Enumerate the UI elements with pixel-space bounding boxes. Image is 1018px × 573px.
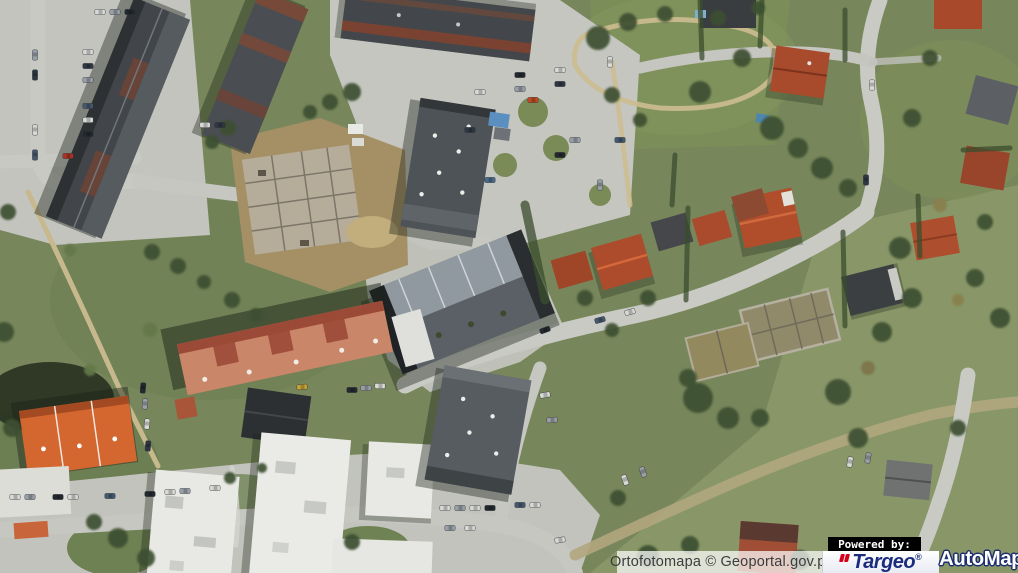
automapa-logo[interactable]: AutoMapa ®: [939, 548, 1018, 570]
targeo-logo[interactable]: Targeo ®: [822, 551, 939, 573]
powered-by-label: Powered by:: [828, 537, 921, 551]
targeo-quote-icon: [840, 554, 850, 562]
powered-by-text: Powered by:: [838, 538, 911, 551]
aerial-photo: [0, 0, 1018, 573]
building: [174, 396, 197, 419]
automapa-wordmark: AutoMapa: [939, 548, 1018, 570]
building: [11, 387, 138, 479]
building: [0, 466, 71, 518]
building: [13, 521, 48, 539]
map-viewport[interactable]: Ortofotomapa © Geoportal.gov.pl Powered …: [0, 0, 1018, 573]
targeo-registered-mark: ®: [915, 552, 922, 562]
attribution-text: Ortofotomapa © Geoportal.gov.pl: [610, 554, 829, 570]
targeo-wordmark: Targeo: [852, 552, 915, 572]
construction-site: [230, 118, 408, 292]
attribution-bar: Ortofotomapa © Geoportal.gov.pl: [617, 551, 822, 573]
